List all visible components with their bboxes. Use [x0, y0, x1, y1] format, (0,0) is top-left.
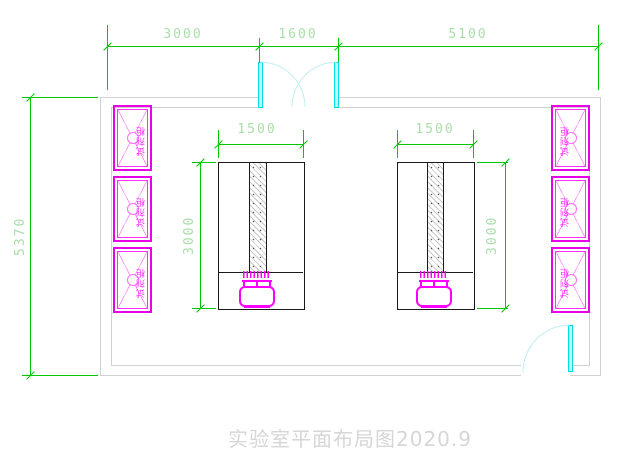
- dim-line-room-depth: [30, 97, 31, 375]
- wall-top-outer-right: [338, 97, 601, 98]
- floor-plan-canvas: 3000 1600 5100 5370 1500 3000: [0, 0, 619, 469]
- dim-line-bench-right-depth: [505, 162, 506, 308]
- cabinet-label: 试剂柜: [135, 261, 148, 305]
- wall-top-outer-left: [100, 97, 259, 98]
- cabinet-label: 试剂柜: [135, 119, 148, 163]
- wall-bottom-inner-left: [111, 365, 521, 366]
- dim-ext-depth-bottom: [22, 375, 98, 376]
- dim-label-door: 1600: [263, 27, 333, 42]
- dim-label-bench-right-width: 1500: [400, 122, 470, 137]
- sink-basin: [239, 286, 275, 307]
- wall-right-outer: [600, 97, 601, 376]
- sink-basin: [416, 286, 452, 307]
- sink-drain-rack: [243, 271, 271, 278]
- reagent-cabinet: 试剂柜: [113, 247, 152, 313]
- dim-ext: [192, 162, 216, 163]
- wall-left-inner: [111, 107, 112, 366]
- dim-label-bench-right-depth: 3000: [485, 202, 500, 268]
- cabinet-label: 试剂柜: [559, 261, 572, 305]
- sink-base: [421, 306, 447, 308]
- reagent-cabinet: 试剂柜: [113, 105, 152, 171]
- cabinet-label: 试剂柜: [559, 119, 572, 163]
- dim-label-room-depth: 5370: [13, 200, 28, 272]
- dim-ext-top-right: [598, 25, 599, 90]
- reagent-cabinet: 试剂柜: [113, 176, 152, 242]
- wall-bottom-outer-right: [570, 375, 601, 376]
- dim-line-bench-left-depth: [200, 162, 201, 308]
- cabinet-label: 试剂柜: [135, 190, 148, 234]
- reagent-cabinet: 试剂柜: [551, 176, 590, 242]
- door-swing-arc: [518, 322, 575, 375]
- sink-base: [244, 306, 270, 308]
- drawing-title: 实验室平面布局图2020.9: [228, 423, 472, 452]
- dim-ext: [192, 308, 216, 309]
- reagent-cabinet: 试剂柜: [551, 247, 590, 313]
- wall-bottom-outer-left: [100, 375, 521, 376]
- dim-ext-depth-top: [22, 97, 98, 98]
- wall-left-outer: [100, 97, 101, 376]
- double-door-swing-arcs: [255, 60, 347, 112]
- dim-label-top-left: 3000: [148, 27, 218, 42]
- bench-left-reagent-shelf: [249, 163, 267, 272]
- dim-label-top-right: 5100: [433, 27, 503, 42]
- dim-line-bench-left-width: [218, 144, 303, 145]
- dim-line-bench-right-width: [397, 144, 473, 145]
- dim-line-top: [107, 46, 598, 47]
- dim-label-bench-left-width: 1500: [222, 122, 292, 137]
- sink-drain-rack: [420, 271, 448, 278]
- dim-label-bench-left-depth: 3000: [182, 202, 197, 268]
- dim-ext-top-left: [107, 25, 108, 90]
- cabinet-label: 试剂柜: [559, 190, 572, 234]
- bench-right-reagent-shelf: [427, 163, 444, 272]
- reagent-cabinet: 试剂柜: [551, 105, 590, 171]
